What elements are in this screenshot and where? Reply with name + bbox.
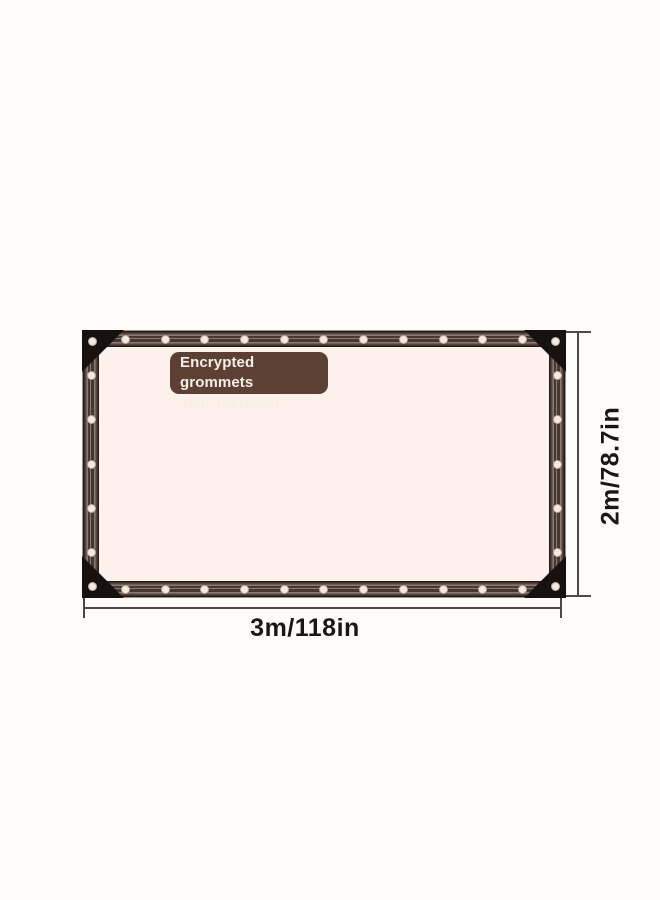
grommet-icon [553, 371, 562, 380]
grommet-icon [280, 585, 289, 594]
corner-patch-top-right [524, 330, 566, 372]
grommet-icon [121, 335, 130, 344]
tarp-top-edge-webbing [83, 331, 565, 347]
grommet-icon [161, 585, 170, 594]
tarp-right-edge-webbing [549, 331, 565, 597]
grommet-icon [240, 335, 249, 344]
grommet-icon [87, 548, 96, 557]
grommet-icon [439, 335, 448, 344]
grommet-icon [553, 460, 562, 469]
grommet-icon [553, 415, 562, 424]
grommet-icon [478, 335, 487, 344]
grommet-icon [87, 460, 96, 469]
grommet-icon [399, 335, 408, 344]
grommet-icon [553, 504, 562, 513]
width-dimension-label: 3m/118in [65, 614, 545, 643]
feature-label-line2: Tear-resistant [180, 393, 328, 413]
grommet-icon [87, 415, 96, 424]
corner-patch-bottom-right [524, 556, 566, 598]
grommet-icon [121, 585, 130, 594]
grommet-icon [478, 585, 487, 594]
grommet-icon [359, 335, 368, 344]
grommet-icon [280, 335, 289, 344]
grommet-icon [439, 585, 448, 594]
grommet-icon [518, 335, 527, 344]
grommet-icon [87, 504, 96, 513]
grommet-icon [88, 582, 97, 591]
feature-label-line1: Encrypted grommets [180, 353, 328, 393]
grommet-icon [551, 337, 560, 346]
grommet-icon [319, 335, 328, 344]
height-dimension-label: 2m/78.7in [597, 407, 626, 525]
grommet-icon [88, 337, 97, 346]
grommet-icon [553, 548, 562, 557]
grommet-icon [200, 585, 209, 594]
tarp-bottom-edge-webbing [83, 581, 565, 597]
grommet-icon [399, 585, 408, 594]
grommet-icon [359, 585, 368, 594]
grommet-icon [87, 371, 96, 380]
tarp-left-edge-webbing [83, 331, 99, 597]
grommet-icon [551, 582, 560, 591]
height-dimension-line [577, 331, 579, 597]
tarp-graphic: Encrypted grommets Tear-resistant [83, 331, 565, 597]
grommet-icon [200, 335, 209, 344]
grommet-icon [161, 335, 170, 344]
grommet-icon [319, 585, 328, 594]
feature-callout-label: Encrypted grommets Tear-resistant [170, 352, 328, 394]
width-dimension-line [83, 607, 562, 609]
grommet-icon [240, 585, 249, 594]
grommet-icon [518, 585, 527, 594]
product-dimension-diagram: Encrypted grommets Tear-resistant 3m/118… [0, 0, 660, 900]
